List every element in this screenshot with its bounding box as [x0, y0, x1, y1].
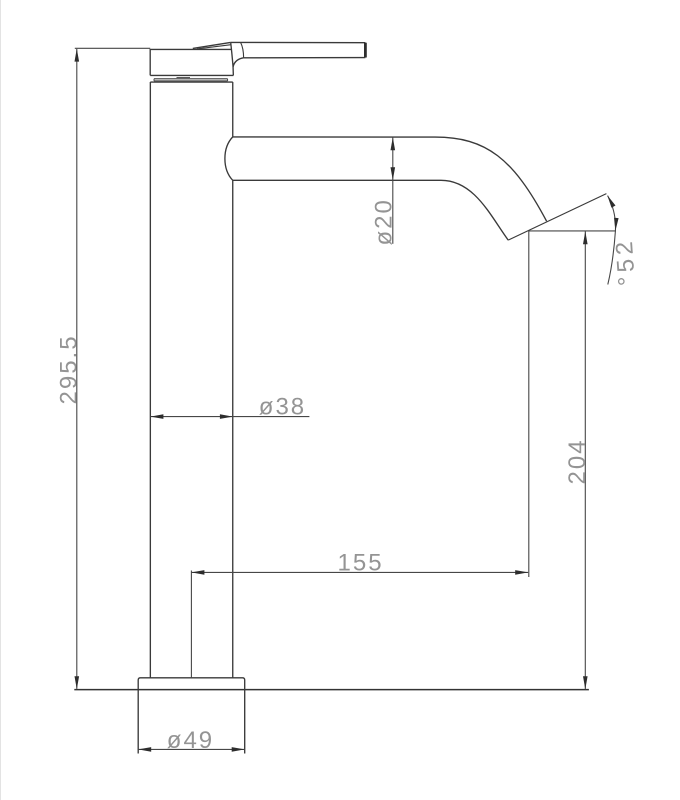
svg-text:ø20: ø20 [371, 198, 398, 245]
svg-text:°52: °52 [611, 237, 641, 287]
svg-text:ø49: ø49 [167, 727, 214, 754]
svg-text:204: 204 [564, 438, 591, 484]
svg-text:295.5: 295.5 [55, 334, 82, 404]
svg-text:155: 155 [338, 550, 384, 577]
svg-text:ø38: ø38 [259, 394, 306, 421]
